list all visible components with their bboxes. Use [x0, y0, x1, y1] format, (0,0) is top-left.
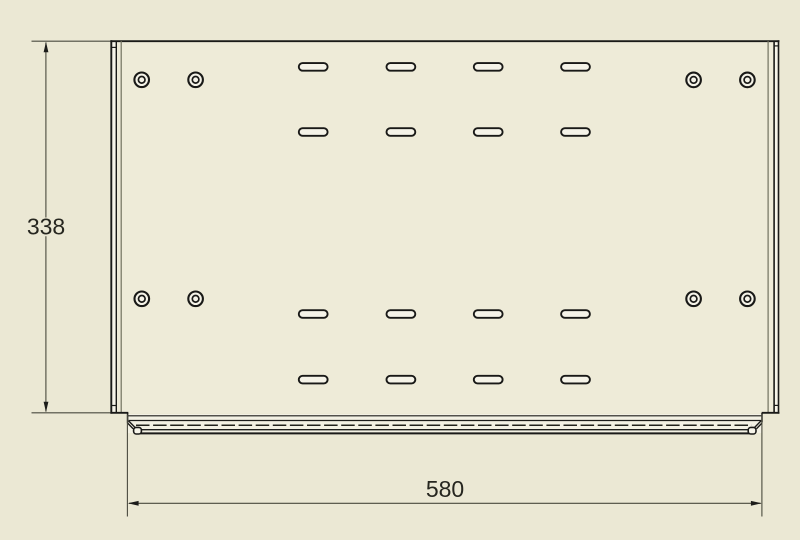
svg-text:580: 580 — [426, 476, 464, 502]
svg-text:338: 338 — [27, 214, 65, 240]
